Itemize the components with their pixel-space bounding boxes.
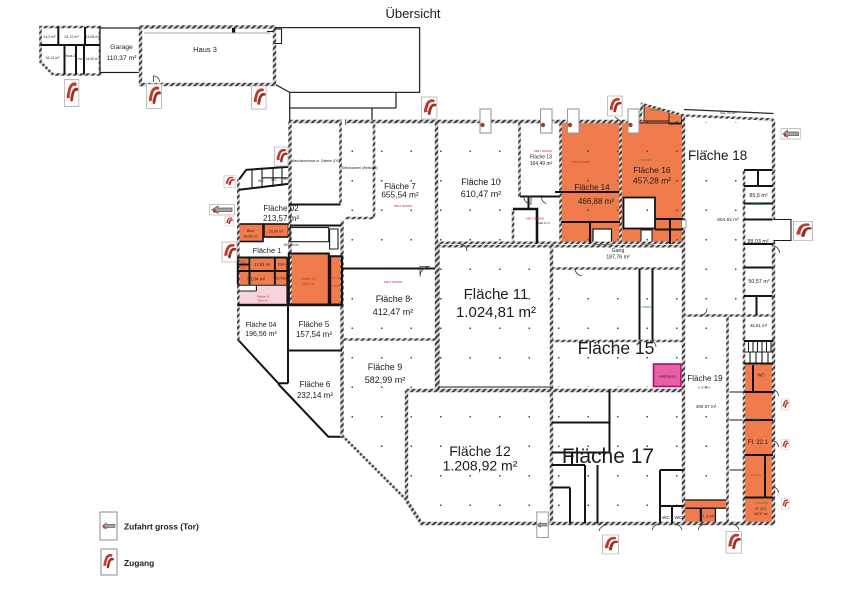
svg-text:102,7 m²: 102,7 m² bbox=[302, 282, 315, 286]
svg-text:Fl. 1c: Fl. 1c bbox=[332, 276, 340, 280]
svg-text:Fl. 22.1: Fl. 22.1 bbox=[755, 507, 766, 511]
svg-text:157,54 m²: 157,54 m² bbox=[296, 330, 332, 339]
svg-text:34,11 m²: 34,11 m² bbox=[46, 56, 61, 60]
svg-text:9,73m²: 9,73m² bbox=[276, 277, 287, 281]
svg-text:14,2 m²: 14,2 m² bbox=[43, 35, 56, 39]
svg-text:Haus 3: Haus 3 bbox=[193, 45, 217, 54]
svg-text:29,06 m²: 29,06 m² bbox=[243, 235, 258, 239]
svg-text:Fläche 6: Fläche 6 bbox=[300, 380, 331, 389]
svg-text:34,45: 34,45 bbox=[332, 284, 340, 288]
svg-text:412,47 m²: 412,47 m² bbox=[373, 307, 414, 317]
svg-text:Haus 2: Haus 2 bbox=[65, 54, 75, 58]
svg-text:582,99 m²: 582,99 m² bbox=[365, 375, 406, 385]
svg-text:Gang: Gang bbox=[612, 248, 625, 254]
svg-text:ABST: ABST bbox=[240, 260, 247, 264]
svg-text:Fl. 2.04: Fl. 2.04 bbox=[700, 514, 714, 519]
svg-text:33,04 m²: 33,04 m² bbox=[247, 277, 266, 282]
svg-text:Fl. 22.3: Fl. 22.3 bbox=[751, 473, 761, 477]
svg-text:213,57 m²: 213,57 m² bbox=[263, 214, 299, 223]
svg-text:604,62 m²: 604,62 m² bbox=[717, 217, 739, 223]
svg-text:Maschinenhaus m. Galerie (OG): Maschinenhaus m. Galerie (OG) bbox=[292, 159, 341, 163]
svg-text:187,76 m²: 187,76 m² bbox=[606, 255, 630, 261]
svg-text:20,59 m²: 20,59 m² bbox=[269, 230, 284, 234]
svg-text:Fläche 5: Fläche 5 bbox=[299, 320, 330, 329]
svg-text:Fläche 15: Fläche 15 bbox=[578, 338, 655, 358]
svg-text:50m m²: 50m m² bbox=[258, 299, 268, 303]
svg-text:Holzraum: Holzraum bbox=[659, 375, 675, 379]
svg-text:466,88 m²: 466,88 m² bbox=[578, 197, 614, 206]
svg-text:43,37 m²: 43,37 m² bbox=[754, 512, 768, 516]
svg-text:1.024,81 m²: 1.024,81 m² bbox=[456, 304, 536, 321]
svg-text:Fläche 02: Fläche 02 bbox=[263, 204, 299, 213]
svg-text:Fläche 10: Fläche 10 bbox=[461, 177, 501, 187]
svg-text:164,49 m²: 164,49 m² bbox=[530, 161, 553, 167]
svg-text:WC: WC bbox=[271, 178, 277, 182]
svg-text:24,72 m²: 24,72 m² bbox=[64, 35, 79, 39]
svg-text:Fläche 1: Fläche 1 bbox=[253, 246, 282, 255]
svg-text:WC: WC bbox=[757, 373, 764, 378]
svg-text:Fläche 17: Fläche 17 bbox=[562, 445, 654, 468]
svg-text:655,54 m²: 655,54 m² bbox=[381, 190, 419, 200]
svg-text:46,61 m²: 46,61 m² bbox=[750, 323, 768, 328]
svg-text:Fläche 1b: Fläche 1b bbox=[302, 277, 316, 281]
svg-text:MIET 500000: MIET 500000 bbox=[534, 149, 552, 153]
svg-text:85,6 m²: 85,6 m² bbox=[749, 193, 767, 199]
svg-text:14,05 m²: 14,05 m² bbox=[86, 57, 99, 61]
svg-text:13,95 m²: 13,95 m² bbox=[85, 35, 100, 39]
svg-text:Fläche 11: Fläche 11 bbox=[464, 286, 529, 303]
svg-text:WC: WC bbox=[258, 179, 264, 183]
svg-text:196,56 m²: 196,56 m² bbox=[245, 331, 277, 338]
svg-text:WC: WC bbox=[662, 515, 671, 521]
svg-text:1.208,92 m²: 1.208,92 m² bbox=[443, 458, 518, 474]
svg-text:17,81 m²: 17,81 m² bbox=[254, 262, 271, 267]
svg-text:490,07 m²: 490,07 m² bbox=[696, 404, 717, 409]
svg-text:50,57 m²: 50,57 m² bbox=[748, 279, 769, 285]
svg-text:100,0 m²: 100,0 m² bbox=[538, 221, 550, 225]
svg-text:M 500000: M 500000 bbox=[751, 202, 764, 206]
svg-text:MIET 500000: MIET 500000 bbox=[384, 280, 402, 284]
svg-text:Fläche 16: Fläche 16 bbox=[633, 165, 671, 175]
svg-text:Garage: Garage bbox=[110, 44, 133, 51]
svg-text:9,75m²: 9,75m² bbox=[75, 57, 84, 61]
svg-text:M 500000: M 500000 bbox=[640, 305, 653, 309]
svg-text:Fläche 8: Fläche 8 bbox=[376, 294, 411, 304]
svg-text:M 500000: M 500000 bbox=[650, 108, 663, 112]
svg-text:Fläche 14: Fläche 14 bbox=[574, 183, 610, 192]
svg-text:Fläche 19: Fläche 19 bbox=[687, 374, 723, 383]
svg-text:Fl. 22.1: Fl. 22.1 bbox=[748, 440, 769, 446]
svg-text:M 500000: M 500000 bbox=[698, 386, 711, 390]
svg-text:Fläche 04: Fläche 04 bbox=[246, 322, 277, 329]
svg-text:M 500000: M 500000 bbox=[756, 501, 769, 505]
svg-text:MIET 500000: MIET 500000 bbox=[394, 204, 412, 208]
svg-text:20m²: 20m² bbox=[278, 263, 287, 267]
svg-text:Zugang: Zugang bbox=[124, 558, 154, 568]
svg-text:100,40 m²: 100,40 m² bbox=[283, 243, 299, 247]
svg-text:Fläche 13: Fläche 13 bbox=[530, 155, 552, 161]
svg-text:457,28 m²: 457,28 m² bbox=[633, 176, 671, 186]
svg-text:WC: WC bbox=[675, 515, 684, 521]
svg-text:Fläche 9: Fläche 9 bbox=[368, 362, 403, 372]
svg-text:232,14 m²: 232,14 m² bbox=[297, 391, 333, 400]
svg-text:MIET 500000: MIET 500000 bbox=[526, 217, 544, 221]
svg-text:610,47 m²: 610,47 m² bbox=[461, 189, 502, 199]
svg-text:Übersicht: Übersicht bbox=[386, 6, 441, 21]
svg-text:Zufahrt gross (Tor): Zufahrt gross (Tor) bbox=[124, 522, 199, 532]
svg-text:83,76 m²: 83,76 m² bbox=[720, 110, 737, 115]
svg-text:88,03 m²: 88,03 m² bbox=[747, 239, 768, 245]
svg-text:Siebdruckerei (Werkstatt): Siebdruckerei (Werkstatt) bbox=[342, 166, 378, 170]
svg-text:MIET 500000: MIET 500000 bbox=[572, 160, 590, 164]
svg-text:110,37 m²: 110,37 m² bbox=[106, 55, 137, 62]
svg-text:Fläche 18: Fläche 18 bbox=[688, 148, 747, 163]
svg-text:Büro: Büro bbox=[247, 229, 255, 233]
svg-text:ABST: ABST bbox=[240, 266, 247, 270]
svg-text:M 500000: M 500000 bbox=[638, 158, 652, 162]
svg-text:M 500000: M 500000 bbox=[748, 417, 761, 421]
